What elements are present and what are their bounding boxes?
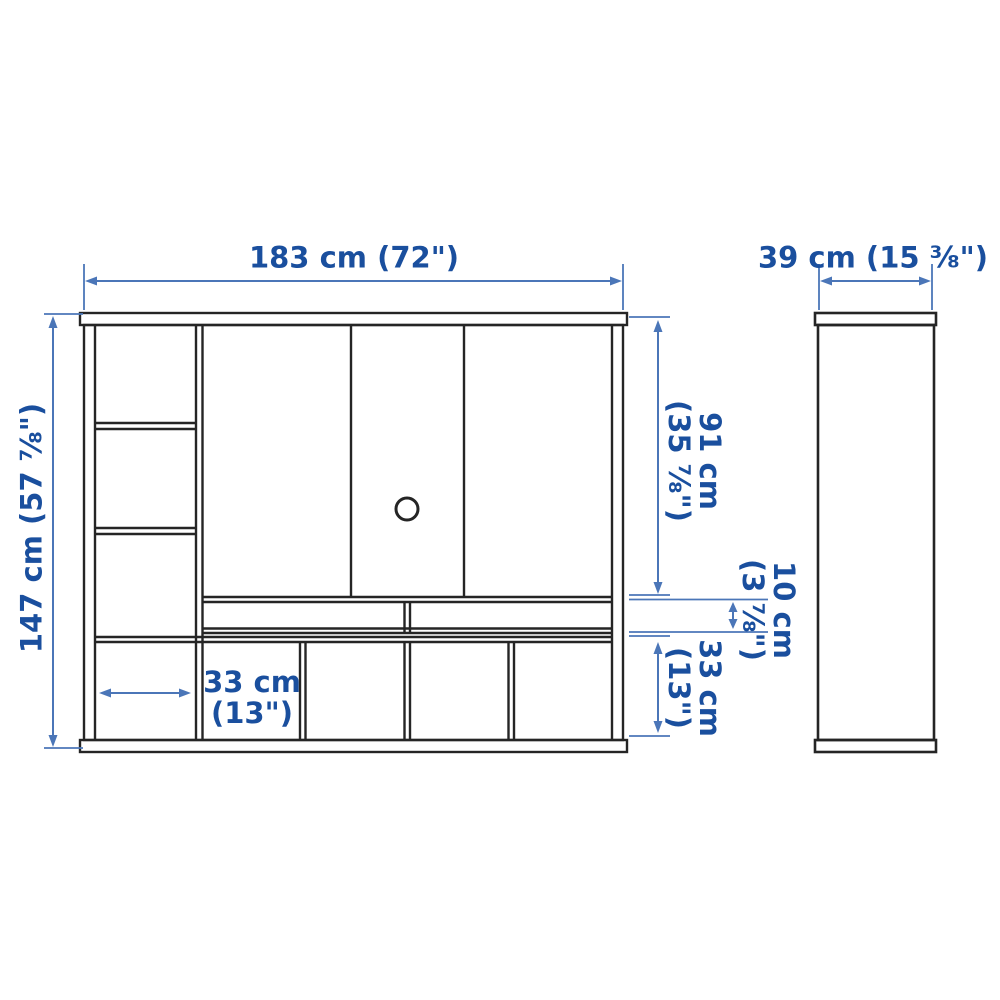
cube-width-dimension-arrow: [99, 689, 191, 698]
upper-section-inch: (35 ⅞"): [663, 400, 694, 522]
door-panels: [351, 325, 464, 597]
media-shelf-slot: [203, 597, 613, 633]
furniture-dimension-diagram: 183 cm (72") 39 cm (15 ⅜") 147 cm (57 ⅞"…: [0, 0, 1000, 1000]
dimension-lines: [44, 264, 932, 748]
lower-section-dimension-label: 33 cm (13"): [663, 639, 725, 737]
side-body: [818, 325, 934, 740]
lower-section-inch: (13"): [663, 639, 694, 737]
width-dimension-label: 183 cm (72"): [249, 243, 459, 274]
upper-section-cm: 91 cm: [694, 400, 725, 522]
height-dimension-arrow: [44, 314, 83, 748]
front-view: [80, 313, 627, 752]
depth-dimension-label: 39 cm (15 ⅜"): [758, 243, 988, 274]
media-gap-cm: 10 cm: [768, 559, 799, 661]
diagram-linework: [0, 0, 1000, 1000]
media-gap-dimension-label: 10 cm (3 ⅞"): [737, 559, 799, 661]
front-top-panel: [80, 313, 627, 325]
upper-section-dimension-label: 91 cm (35 ⅞"): [663, 400, 725, 522]
side-top-panel: [815, 313, 936, 325]
bottom-cube-row: [95, 637, 612, 740]
door-handle-hole-icon: [396, 498, 418, 520]
front-carcass: [84, 325, 623, 740]
media-gap-inch: (3 ⅞"): [737, 559, 768, 661]
left-column-divider: [196, 325, 203, 740]
lower-section-cm: 33 cm: [694, 639, 725, 737]
side-bottom-panel: [815, 740, 936, 752]
front-bottom-panel: [80, 740, 627, 752]
cube-width-inch: (13"): [203, 698, 301, 729]
cube-width-cm: 33 cm: [203, 667, 301, 698]
side-view: [815, 313, 936, 752]
cube-width-dimension-label: 33 cm (13"): [203, 667, 301, 729]
height-dimension-label: 147 cm (57 ⅞"): [17, 403, 48, 653]
left-column-shelves: [95, 423, 196, 534]
